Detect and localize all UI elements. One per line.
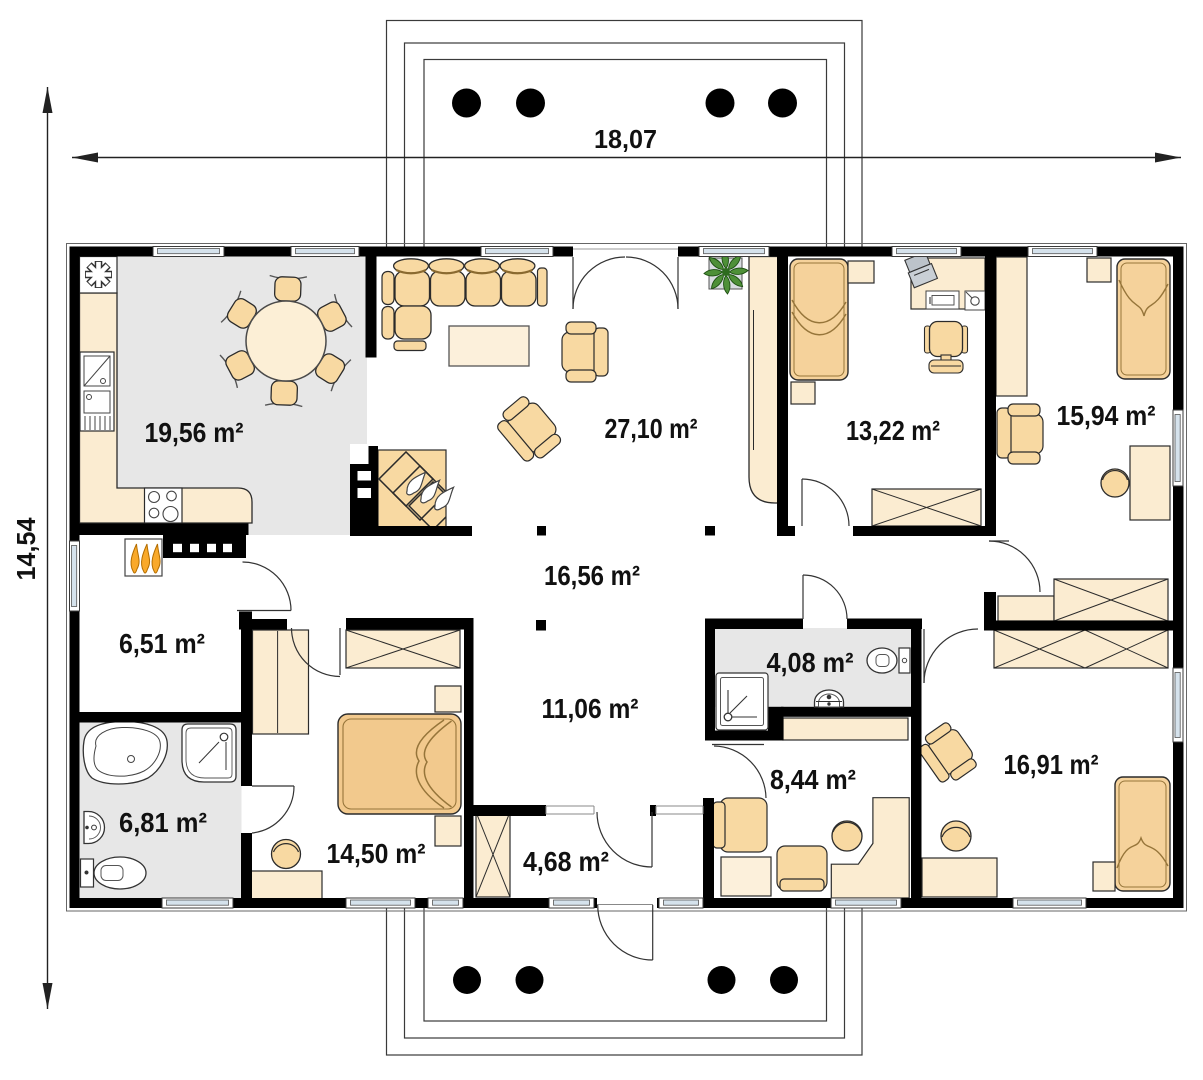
svg-text:13,22 m²: 13,22 m²	[846, 415, 940, 446]
svg-text:4,68 m²: 4,68 m²	[523, 846, 609, 877]
svg-text:6,51 m²: 6,51 m²	[119, 628, 205, 659]
svg-text:16,56 m²: 16,56 m²	[544, 560, 640, 591]
svg-text:19,56 m²: 19,56 m²	[145, 417, 244, 448]
svg-text:16,91 m²: 16,91 m²	[1004, 749, 1099, 780]
svg-text:27,10 m²: 27,10 m²	[605, 413, 698, 444]
svg-text:11,06 m²: 11,06 m²	[542, 693, 639, 724]
svg-text:14,54: 14,54	[11, 517, 41, 581]
svg-text:14,50 m²: 14,50 m²	[327, 838, 426, 869]
svg-text:8,44 m²: 8,44 m²	[770, 764, 856, 795]
svg-text:6,81 m²: 6,81 m²	[119, 807, 207, 838]
svg-text:18,07: 18,07	[594, 124, 657, 154]
svg-text:4,08 m²: 4,08 m²	[767, 647, 854, 678]
svg-text:15,94 m²: 15,94 m²	[1057, 400, 1156, 431]
